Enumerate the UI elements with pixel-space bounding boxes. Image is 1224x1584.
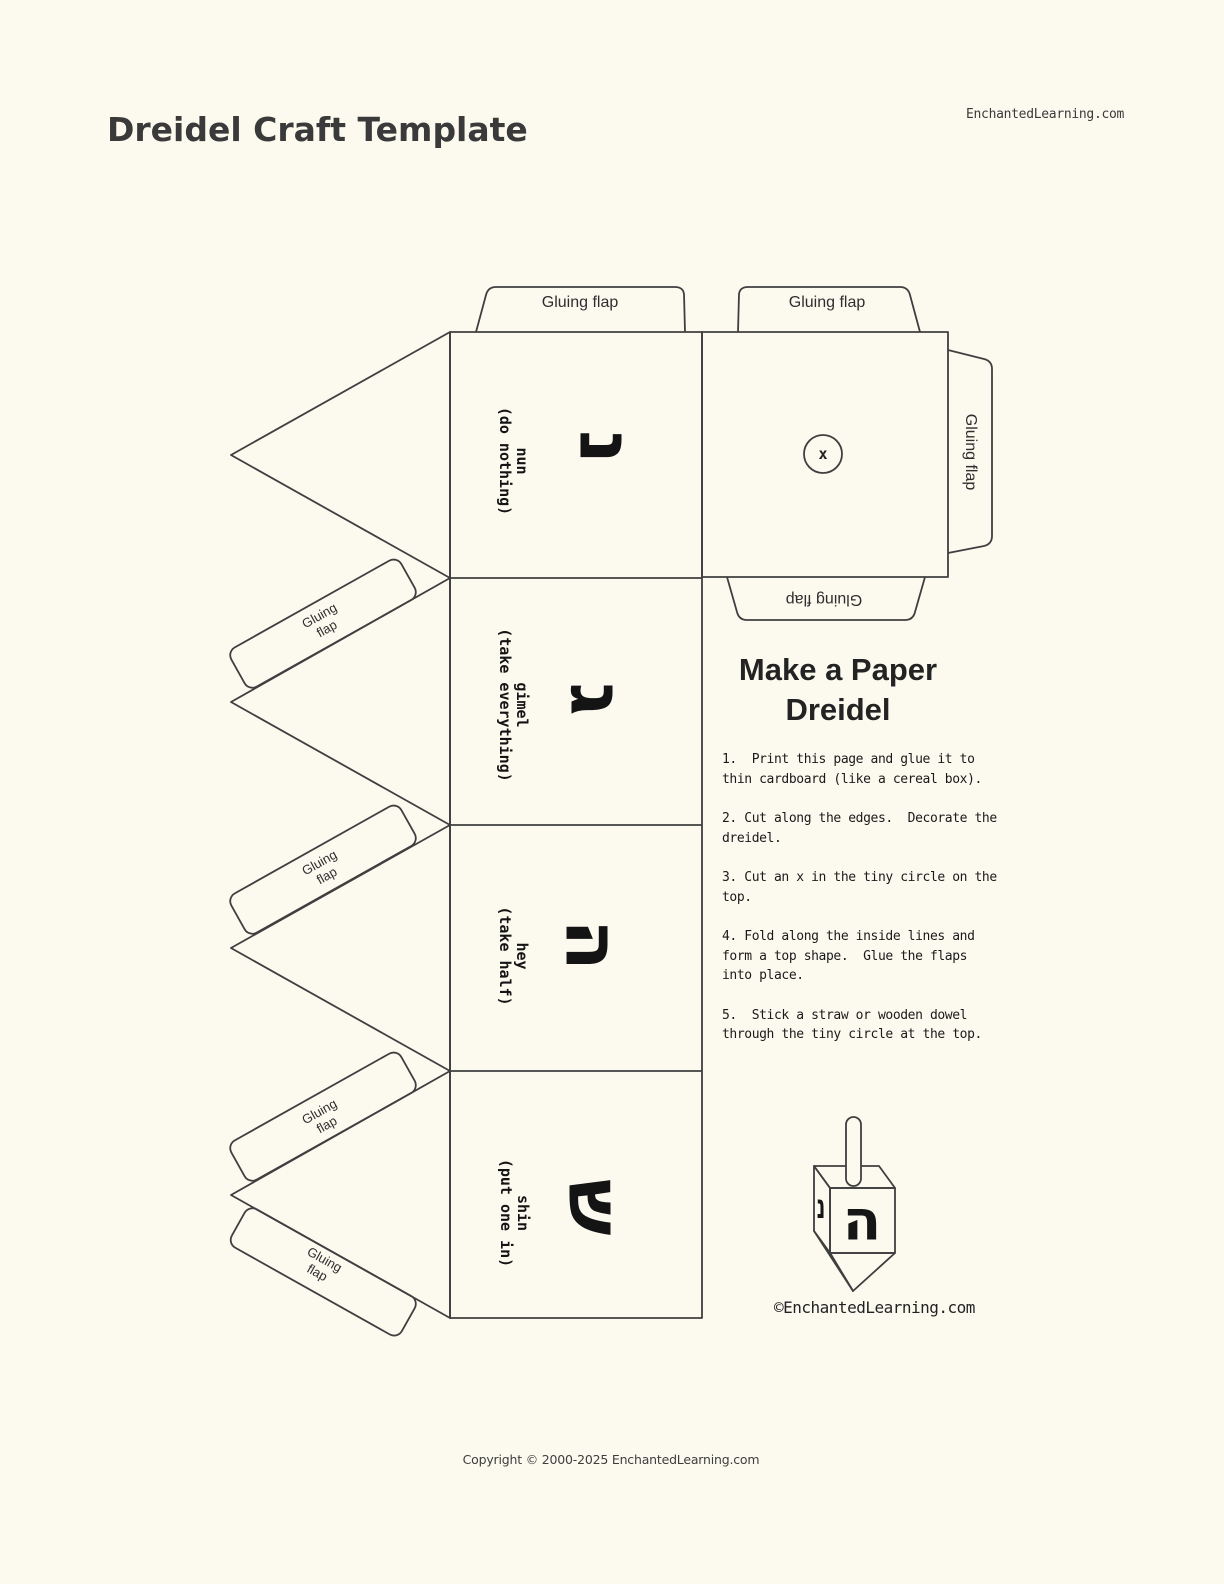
instruction-step-1: 1. Print this page and glue it to thin c… bbox=[722, 750, 1032, 789]
page-background: { "page": { "header_site": "EnchantedLea… bbox=[0, 0, 1224, 1584]
face-action: (do nothing) bbox=[496, 407, 513, 515]
instruction-step-3: 3. Cut an x in the tiny circle on the to… bbox=[722, 868, 1032, 907]
illustration-caption: ©EnchantedLearning.com bbox=[774, 1298, 975, 1317]
dreidel-side-letter: נ bbox=[817, 1187, 825, 1227]
face-text-nun: nun(do nothing) bbox=[496, 407, 530, 515]
instruction-step-5: 5. Stick a straw or wooden dowel through… bbox=[722, 1006, 1032, 1045]
instructions-heading: Make a Paper Dreidel bbox=[739, 650, 937, 730]
gluing-flap-label-top-right: Gluing flap bbox=[789, 294, 866, 312]
hebrew-letter-shin: ש bbox=[558, 1179, 633, 1236]
face-action: (take everything) bbox=[496, 628, 513, 782]
gluing-flap-label-bottom: Gluing flap bbox=[786, 590, 863, 608]
instruction-step-2: 2. Cut along the edges. Decorate the dre… bbox=[722, 809, 1032, 848]
face-name: shin bbox=[514, 1159, 531, 1267]
hebrew-letter-gimel: ג bbox=[560, 682, 635, 716]
gluing-flap-label-right: Gluing flap bbox=[961, 414, 979, 491]
face-text-hey: hey(take half) bbox=[496, 906, 530, 1005]
hebrew-letter-hey: ה bbox=[555, 919, 630, 971]
page-title: Dreidel Craft Template bbox=[107, 110, 528, 149]
dreidel-front-letter: ה bbox=[843, 1189, 881, 1254]
face-text-shin: shin(put one in) bbox=[497, 1159, 531, 1267]
face-action: (take half) bbox=[496, 906, 513, 1005]
site-header: EnchantedLearning.com bbox=[966, 107, 1124, 122]
face-action: (put one in) bbox=[497, 1159, 514, 1267]
dreidel-stem bbox=[846, 1117, 861, 1186]
instruction-step-4: 4. Fold along the inside lines and form … bbox=[722, 927, 1032, 986]
template-svg bbox=[0, 0, 1224, 1584]
instructions-list: 1. Print this page and glue it to thin c… bbox=[722, 750, 1032, 1065]
face-name: hey bbox=[513, 906, 530, 1005]
footer-copyright: Copyright © 2000-2025 EnchantedLearning.… bbox=[463, 1452, 760, 1467]
cut-circle-x-mark: x bbox=[818, 445, 827, 463]
face-name: gimel bbox=[513, 628, 530, 782]
gluing-flap-label-top-left: Gluing flap bbox=[542, 294, 619, 312]
hebrew-letter-nun: נ bbox=[569, 430, 644, 464]
face-name: nun bbox=[513, 407, 530, 515]
face-text-gimel: gimel(take everything) bbox=[496, 628, 530, 782]
